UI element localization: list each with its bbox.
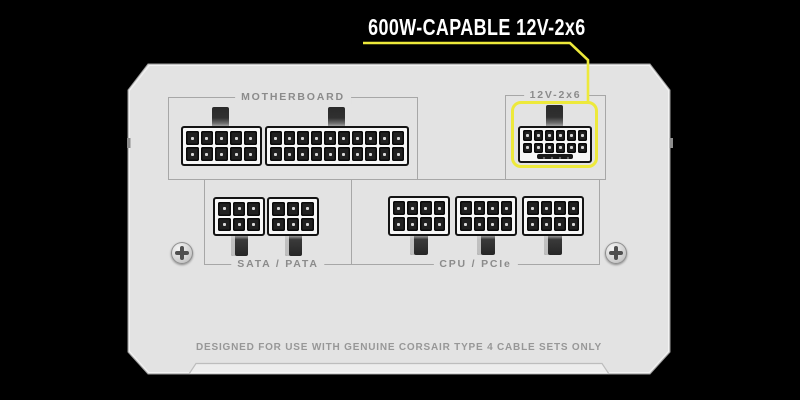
connector-motherboard-20pin [265,126,409,166]
pin-grid [460,201,512,231]
pin-grid [523,130,587,153]
section-label-sata-pata: SATA / PATA [231,258,324,271]
psu-rear-panel-diagram: MOTHERBOARD 12V-2x6 SATA / PATA CPU / PC… [0,0,800,400]
footer-label: DESIGNED FOR USE WITH GENUINE CORSAIR TY… [128,342,670,353]
sense-pin-bar [537,154,573,159]
edge-notch-left [127,138,131,148]
section-label-cpu-pcie: CPU / PCIe [433,258,517,271]
pin-grid [186,131,257,161]
bottom-lip [189,364,609,375]
pin-grid [393,201,445,231]
latch-tab-motherboard-20pin [328,107,345,127]
connector-cpu-pcie-3 [522,196,584,236]
connector-cpu-pcie-2 [455,196,517,236]
pin-grid [270,131,404,161]
connector-cpu-pcie-1 [388,196,450,236]
connector-sata-pata-1 [213,197,265,236]
screw-left [171,242,193,264]
latch-tab-cpu-2 [477,235,495,255]
latch-tab-motherboard-10pin [212,107,229,127]
latch-tab-sata-1 [231,235,248,256]
pin-grid [272,202,314,231]
latch-tab-sata-2 [285,235,302,256]
connector-motherboard-10pin [181,126,262,166]
screw-right [605,242,627,264]
latch-tab-cpu-1 [410,235,428,255]
connector-sata-pata-2 [267,197,319,236]
connector-12v-2x6 [518,126,592,163]
pin-grid [218,202,260,231]
latch-tab-cpu-3 [544,235,562,255]
latch-tab-12v-2x6 [546,105,563,127]
callout-label: 600W-CAPABLE 12V-2x6 [368,14,568,40]
pin-grid [527,201,579,231]
section-label-motherboard: MOTHERBOARD [235,91,351,104]
edge-notch-right [670,138,674,148]
